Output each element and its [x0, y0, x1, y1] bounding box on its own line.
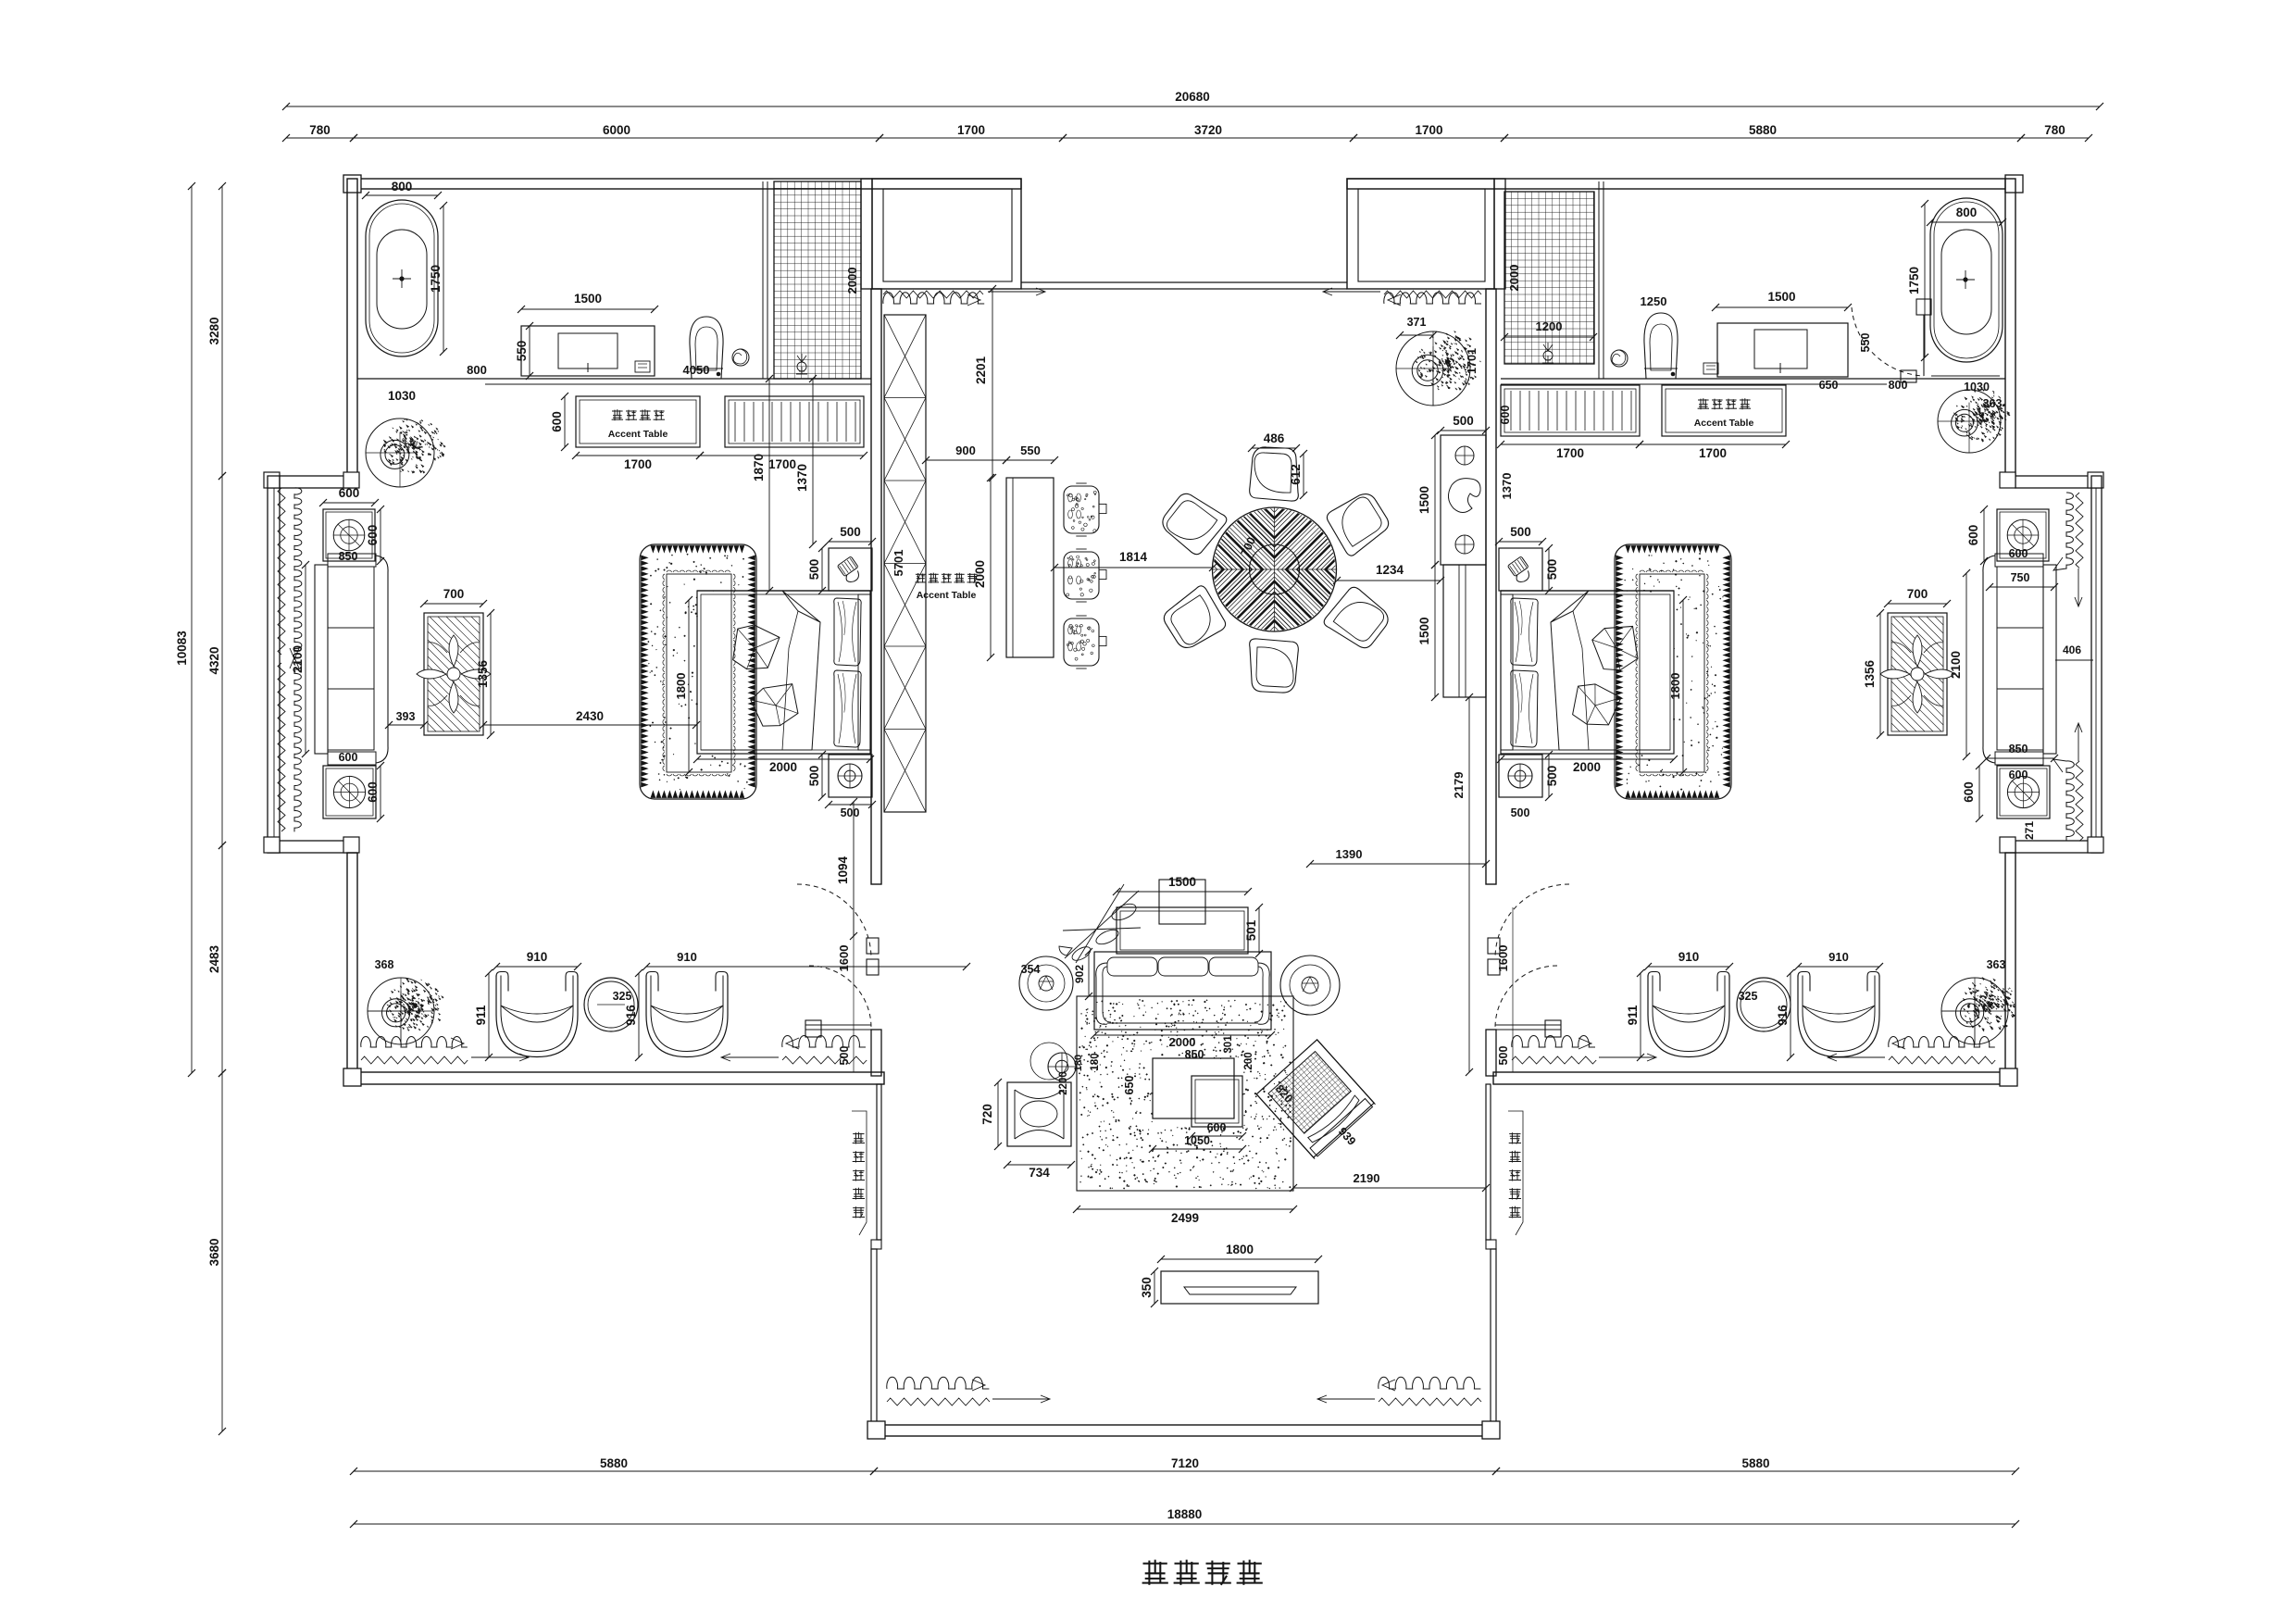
svg-text:650: 650	[1123, 1076, 1136, 1095]
svg-text:354: 354	[1021, 963, 1041, 976]
svg-text:1600: 1600	[837, 945, 851, 972]
svg-text:2000: 2000	[1507, 265, 1521, 292]
svg-text:350: 350	[1140, 1277, 1154, 1298]
svg-text:1370: 1370	[795, 464, 809, 492]
svg-text:2000: 2000	[845, 268, 859, 294]
svg-text:2430: 2430	[576, 709, 604, 723]
svg-text:2201: 2201	[974, 356, 988, 384]
svg-text:500: 500	[1510, 525, 1531, 539]
svg-text:406: 406	[2063, 643, 2081, 656]
svg-text:10083: 10083	[175, 631, 189, 666]
svg-text:550: 550	[1859, 333, 1872, 353]
svg-text:600: 600	[366, 525, 380, 546]
svg-text:3680: 3680	[207, 1238, 221, 1266]
svg-text:2000: 2000	[1573, 760, 1601, 774]
svg-text:501: 501	[1244, 919, 1258, 941]
svg-text:325: 325	[613, 990, 632, 1003]
svg-text:800: 800	[1889, 379, 1908, 392]
svg-text:1600: 1600	[1496, 945, 1510, 972]
svg-text:911: 911	[1626, 1005, 1640, 1025]
svg-text:850: 850	[339, 550, 358, 563]
svg-text:600: 600	[339, 751, 358, 764]
svg-text:916: 916	[1776, 1005, 1790, 1026]
svg-text:500: 500	[807, 559, 821, 581]
svg-text:500: 500	[838, 1046, 851, 1066]
svg-text:800: 800	[1956, 206, 1978, 219]
svg-text:1800: 1800	[1226, 1243, 1254, 1256]
svg-text:850: 850	[1185, 1048, 1204, 1061]
svg-text:2100: 2100	[291, 645, 305, 673]
svg-text:1870: 1870	[752, 454, 766, 481]
svg-text:2000: 2000	[1169, 1035, 1196, 1049]
svg-text:2200: 2200	[1058, 1071, 1069, 1095]
svg-text:2000: 2000	[973, 560, 987, 588]
svg-text:500: 500	[807, 766, 821, 787]
svg-text:271: 271	[2023, 821, 2036, 840]
svg-text:1094: 1094	[836, 856, 850, 884]
svg-text:550: 550	[515, 341, 529, 362]
svg-text:500: 500	[840, 525, 861, 539]
svg-text:1050: 1050	[1184, 1134, 1210, 1147]
svg-text:4320: 4320	[207, 646, 221, 674]
svg-text:1030: 1030	[388, 389, 416, 403]
svg-text:500: 500	[1545, 766, 1559, 787]
svg-text:371: 371	[1407, 316, 1427, 329]
svg-text:902: 902	[1073, 965, 1086, 983]
svg-text:916: 916	[624, 1005, 638, 1026]
svg-text:500: 500	[1497, 1046, 1510, 1066]
svg-text:Accent Table: Accent Table	[608, 429, 668, 440]
svg-text:600: 600	[339, 486, 360, 500]
svg-text:734: 734	[1029, 1166, 1050, 1180]
svg-text:720: 720	[980, 1104, 994, 1125]
svg-text:301: 301	[1223, 1035, 1234, 1054]
svg-text:1500: 1500	[1168, 875, 1196, 889]
svg-text:2190: 2190	[1354, 1171, 1380, 1185]
svg-text:600: 600	[1207, 1121, 1227, 1134]
svg-text:1234: 1234	[1376, 563, 1404, 577]
svg-text:368: 368	[375, 958, 394, 971]
svg-text:200: 200	[1243, 1052, 1254, 1069]
svg-text:550: 550	[1020, 443, 1041, 457]
svg-text:600: 600	[1966, 525, 1980, 546]
svg-text:18880: 18880	[1167, 1507, 1203, 1521]
svg-text:1700: 1700	[1699, 446, 1727, 460]
svg-text:1814: 1814	[1119, 550, 1148, 564]
svg-text:800: 800	[392, 180, 413, 194]
svg-text:1700: 1700	[1415, 123, 1442, 137]
svg-text:1500: 1500	[1417, 617, 1431, 644]
svg-text:1700: 1700	[768, 457, 796, 471]
svg-text:1700: 1700	[957, 123, 985, 137]
svg-text:1370: 1370	[1500, 473, 1514, 500]
svg-text:800: 800	[467, 363, 487, 377]
svg-text:780: 780	[2044, 123, 2065, 137]
svg-text:600: 600	[1962, 781, 1976, 803]
svg-text:3720: 3720	[1194, 123, 1222, 137]
svg-text:1701: 1701	[1466, 348, 1479, 374]
svg-text:1390: 1390	[1336, 847, 1363, 861]
svg-text:6000: 6000	[603, 123, 630, 137]
svg-text:1500: 1500	[1767, 290, 1795, 304]
svg-text:1750: 1750	[1907, 267, 1921, 294]
svg-text:1356: 1356	[476, 659, 490, 688]
svg-text:1030: 1030	[1964, 381, 1990, 394]
svg-text:3280: 3280	[207, 317, 221, 344]
svg-text:700: 700	[1907, 587, 1928, 601]
svg-text:486: 486	[1264, 431, 1285, 445]
svg-text:500: 500	[1511, 806, 1530, 819]
svg-text:910: 910	[677, 950, 697, 964]
svg-text:600: 600	[366, 781, 380, 803]
svg-text:2483: 2483	[207, 944, 221, 973]
svg-text:1750: 1750	[429, 265, 443, 293]
svg-text:910: 910	[1678, 950, 1700, 964]
svg-text:363: 363	[1987, 958, 2006, 971]
svg-text:600: 600	[2009, 547, 2028, 560]
svg-text:911: 911	[474, 1005, 488, 1025]
svg-text:1250: 1250	[1641, 294, 1667, 308]
svg-text:2179: 2179	[1452, 772, 1466, 799]
svg-text:1200: 1200	[1536, 319, 1563, 333]
svg-text:650: 650	[1819, 379, 1839, 392]
svg-text:20680: 20680	[1175, 90, 1210, 104]
svg-text:780: 780	[309, 123, 331, 137]
svg-text:910: 910	[1828, 950, 1849, 964]
svg-text:180: 180	[1073, 1055, 1084, 1071]
svg-text:1500: 1500	[1417, 486, 1431, 514]
svg-text:600: 600	[1499, 406, 1512, 425]
svg-text:500: 500	[1545, 559, 1559, 581]
svg-text:1700: 1700	[624, 457, 652, 471]
svg-text:363: 363	[1983, 397, 2003, 410]
svg-text:910: 910	[527, 950, 548, 964]
svg-text:5880: 5880	[600, 1456, 628, 1470]
svg-text:700: 700	[443, 587, 465, 601]
svg-text:612: 612	[1289, 464, 1303, 485]
svg-text:600: 600	[550, 411, 564, 432]
svg-text:1356: 1356	[1863, 659, 1877, 688]
svg-text:2499: 2499	[1171, 1211, 1199, 1225]
svg-text:850: 850	[2009, 743, 2028, 756]
svg-text:4050: 4050	[683, 363, 710, 377]
svg-text:5701: 5701	[892, 550, 905, 577]
svg-text:1700: 1700	[1556, 446, 1584, 460]
svg-text:180: 180	[1090, 1053, 1101, 1070]
svg-text:325: 325	[1739, 990, 1758, 1003]
svg-text:Accent Table: Accent Table	[1694, 418, 1754, 429]
svg-text:750: 750	[2011, 571, 2030, 584]
svg-text:900: 900	[955, 443, 976, 457]
svg-text:1500: 1500	[574, 292, 602, 306]
svg-text:7120: 7120	[1171, 1456, 1199, 1470]
svg-text:2100: 2100	[1949, 651, 1963, 679]
svg-text:500: 500	[841, 806, 860, 819]
svg-text:5880: 5880	[1749, 123, 1777, 137]
svg-text:500: 500	[1453, 414, 1474, 428]
svg-text:Accent Table: Accent Table	[917, 590, 977, 601]
svg-text:600: 600	[2009, 768, 2028, 781]
svg-text:1800: 1800	[674, 673, 688, 700]
svg-text:2000: 2000	[769, 760, 797, 774]
svg-text:393: 393	[396, 710, 416, 723]
svg-text:5880: 5880	[1741, 1456, 1769, 1470]
